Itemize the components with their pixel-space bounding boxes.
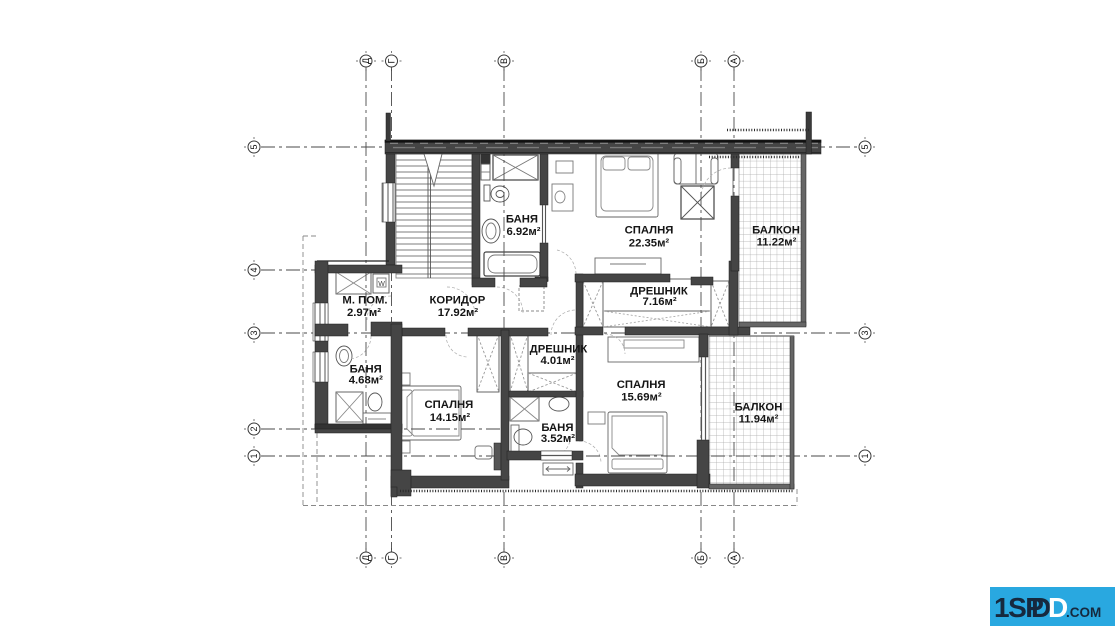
svg-text:1: 1 [249,453,259,458]
svg-text:5: 5 [860,144,870,149]
svg-text:2: 2 [249,426,259,431]
svg-text:17.92м²: 17.92м² [438,307,479,319]
svg-text:5: 5 [249,144,259,149]
svg-text:14.15м²: 14.15м² [430,412,471,424]
svg-text:D: D [1048,592,1068,623]
svg-text:Д: Д [361,58,371,64]
svg-text:БАНЯ: БАНЯ [350,363,382,375]
svg-text:БАЛКОН: БАЛКОН [752,224,800,236]
svg-text:2.97м²: 2.97м² [347,307,381,319]
svg-text:11.94м²: 11.94м² [739,414,779,426]
svg-text:В: В [499,58,509,64]
svg-text:Г: Г [387,555,397,560]
svg-text:3: 3 [249,330,259,335]
svg-text:4.68м²: 4.68м² [349,375,383,387]
svg-text:ДРЕШНИК: ДРЕШНИК [530,344,588,356]
svg-text:Б: Б [696,555,706,561]
svg-text:СПАЛНЯ: СПАЛНЯ [617,379,666,391]
svg-text:3.52м²: 3.52м² [541,433,575,445]
svg-text:БАНЯ: БАНЯ [506,214,538,226]
svg-text:Б: Б [696,58,706,64]
svg-text:6.92м²: 6.92м² [506,226,540,238]
svg-text:СПАЛНЯ: СПАЛНЯ [425,399,474,411]
svg-text:11.22м²: 11.22м² [757,237,797,249]
svg-text:4.01м²: 4.01м² [540,355,574,367]
svg-text:.COM: .COM [1066,605,1101,620]
svg-text:15.69м²: 15.69м² [621,391,662,403]
svg-text:А: А [729,555,739,561]
svg-text:СПАЛНЯ: СПАЛНЯ [625,225,674,237]
svg-text:КОРИДОР: КОРИДОР [430,294,486,306]
svg-text:Г: Г [387,58,397,63]
svg-text:М. ПОМ.: М. ПОМ. [342,295,387,307]
svg-text:22.35м²: 22.35м² [629,237,670,249]
svg-text:4: 4 [249,267,259,272]
svg-text:В: В [499,555,509,561]
svg-text:Д: Д [361,555,371,561]
svg-text:А: А [729,58,739,64]
svg-text:7.16м²: 7.16м² [643,296,677,308]
svg-text:3: 3 [860,330,870,335]
svg-text:1: 1 [860,453,870,458]
svg-text:БАЛКОН: БАЛКОН [735,402,783,414]
svg-text:W: W [378,281,385,288]
